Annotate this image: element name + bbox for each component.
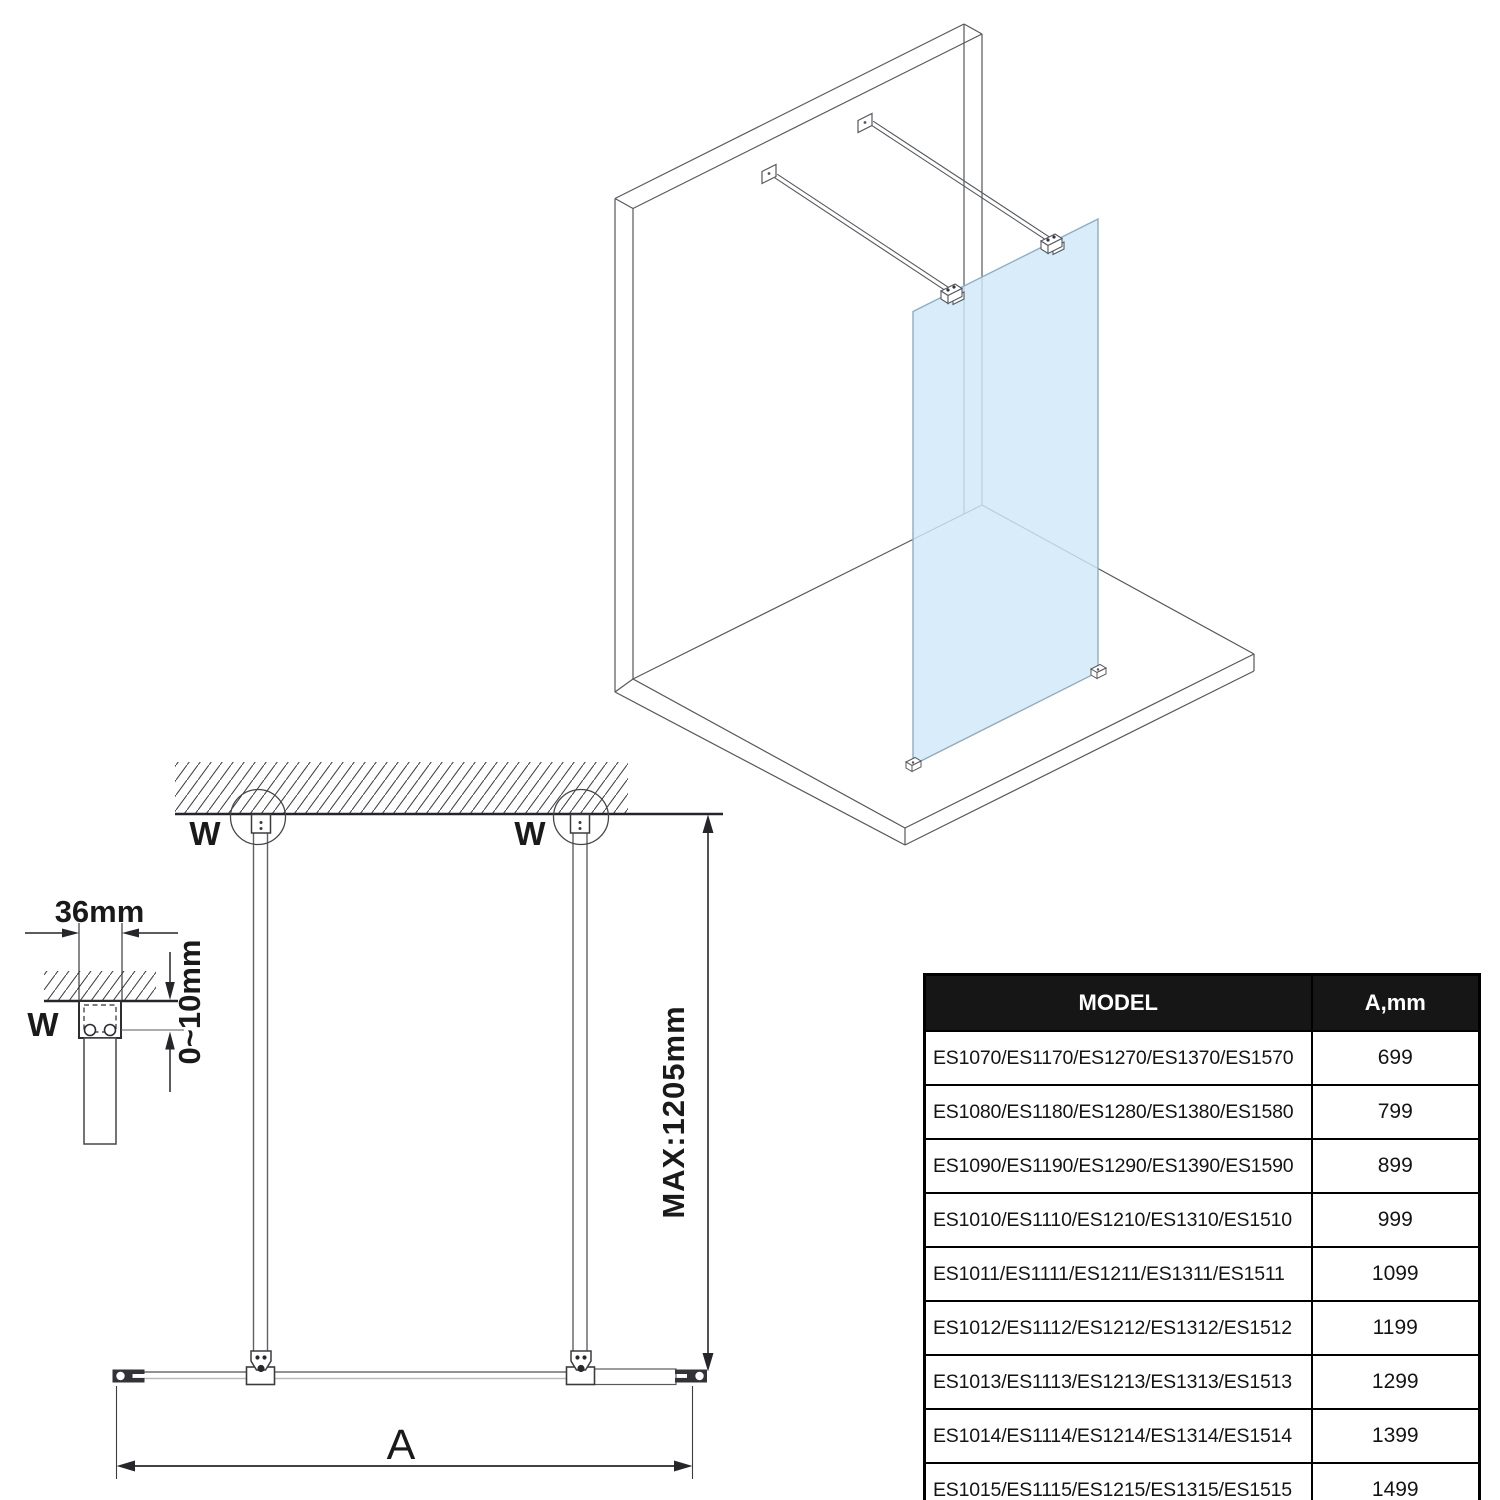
support-bar-iso-1 — [775, 174, 951, 293]
table-row: ES1013/ES1113/ES1213/ES1313/ES1513 1299 — [925, 1355, 1480, 1409]
adjustment-range-label: 0~10mm — [172, 940, 207, 1065]
ceiling-hatch — [175, 762, 628, 814]
table-row: ES1080/ES1180/ES1280/ES1380/ES1580 799 — [925, 1085, 1480, 1139]
dimension-max-height — [703, 815, 714, 1372]
inset-bar — [84, 1038, 116, 1144]
a-cell: 999 — [1312, 1193, 1480, 1247]
table-row: ES1010/ES1110/ES1210/ES1310/ES1510 999 — [925, 1193, 1480, 1247]
table-row: ES1014/ES1114/ES1214/ES1314/ES1514 1399 — [925, 1409, 1480, 1463]
a-cell: 899 — [1312, 1139, 1480, 1193]
a-cell: 1399 — [1312, 1409, 1480, 1463]
a-cell: 1299 — [1312, 1355, 1480, 1409]
end-profile-right — [675, 1370, 707, 1383]
model-cell: ES1012/ES1112/ES1212/ES1312/ES1512 — [925, 1301, 1312, 1355]
a-mm-column-header: A,mm — [1312, 975, 1480, 1032]
model-cell: ES1011/ES1111/ES1211/ES1311/ES1511 — [925, 1247, 1312, 1301]
isometric-view — [615, 24, 1254, 845]
wall-bracket-b — [571, 815, 590, 834]
table-row: ES1012/ES1112/ES1212/ES1312/ES1512 1199 — [925, 1301, 1480, 1355]
table-row: ES1070/ES1170/ES1270/ES1370/ES1570 699 — [925, 1031, 1480, 1085]
wall-label-b: W — [514, 815, 546, 852]
glass-connector-a — [247, 1351, 275, 1385]
page: W W W 36mm 0~10mm MAX:1205mm A MODEL A,m… — [0, 0, 1500, 1500]
size-table: MODEL A,mm ES1070/ES1170/ES1270/ES1370/E… — [923, 973, 1481, 1500]
glass-panel — [913, 219, 1098, 765]
table-row: ES1011/ES1111/ES1211/ES1311/ES1511 1099 — [925, 1247, 1480, 1301]
model-cell: ES1070/ES1170/ES1270/ES1370/ES1570 — [925, 1031, 1312, 1085]
model-column-header: MODEL — [925, 975, 1312, 1032]
glass-top-view — [128, 1369, 692, 1385]
bracket-width-label: 36mm — [55, 894, 145, 929]
inset-ceiling-hatch — [44, 971, 156, 1001]
wall-bracket-a — [252, 815, 271, 834]
glass-width-label: A — [387, 1421, 416, 1469]
wall-label-inset: W — [27, 1006, 59, 1043]
glass-foot-1 — [906, 758, 921, 772]
support-bar-iso-2 — [871, 121, 1051, 242]
model-cell: ES1090/ES1190/ES1290/ES1390/ES1590 — [925, 1139, 1312, 1193]
model-cell: ES1013/ES1113/ES1213/ES1313/ES1513 — [925, 1355, 1312, 1409]
support-arm-segment — [593, 1369, 676, 1385]
glass-connector-b — [567, 1351, 595, 1385]
inset-wall-bracket — [79, 1001, 184, 1038]
table-row: ES1015/ES1115/ES1215/ES1315/ES1515 1499 — [925, 1463, 1480, 1500]
a-cell: 799 — [1312, 1085, 1480, 1139]
max-bar-length-label: MAX:1205mm — [656, 1005, 691, 1218]
a-cell: 1499 — [1312, 1463, 1480, 1500]
size-table-header-row: MODEL A,mm — [925, 975, 1480, 1032]
plan-view — [113, 762, 724, 1479]
wall-flange-2 — [858, 114, 872, 133]
end-profile-left — [113, 1370, 145, 1383]
table-row: ES1090/ES1190/ES1290/ES1390/ES1590 899 — [925, 1139, 1480, 1193]
support-bar-plan-b — [573, 833, 587, 1351]
model-cell: ES1080/ES1180/ES1280/ES1380/ES1580 — [925, 1085, 1312, 1139]
model-cell: ES1015/ES1115/ES1215/ES1315/ES1515 — [925, 1463, 1312, 1500]
wall-flange-1 — [762, 165, 776, 184]
a-cell: 699 — [1312, 1031, 1480, 1085]
model-cell: ES1014/ES1114/ES1214/ES1314/ES1514 — [925, 1409, 1312, 1463]
a-cell: 1199 — [1312, 1301, 1480, 1355]
a-cell: 1099 — [1312, 1247, 1480, 1301]
support-bar-plan-a — [254, 833, 268, 1351]
wall-label-a: W — [189, 815, 221, 852]
model-cell: ES1010/ES1110/ES1210/ES1310/ES1510 — [925, 1193, 1312, 1247]
